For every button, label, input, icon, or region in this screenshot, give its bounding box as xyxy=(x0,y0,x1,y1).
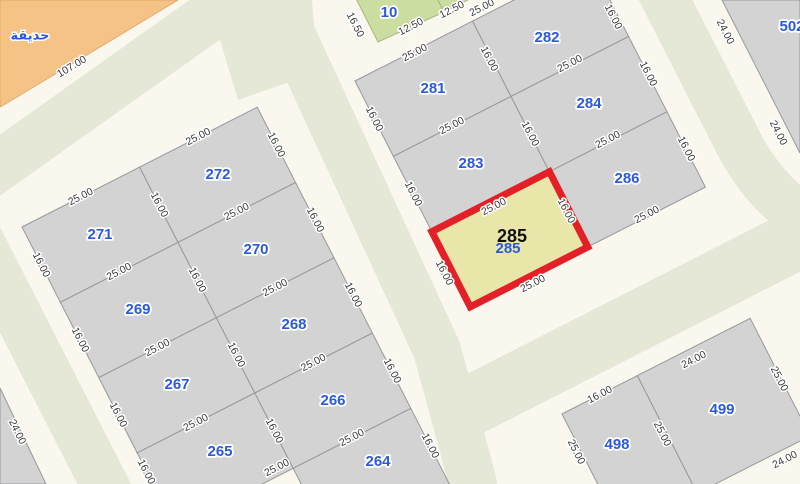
parcel-number-garden: حديقة xyxy=(11,27,50,42)
selected-parcel-number: 285 xyxy=(497,226,527,246)
parcel-number-498: 498 xyxy=(604,436,629,453)
parcel-number-10: 10 xyxy=(381,4,398,21)
parcel-number-281: 281 xyxy=(420,80,445,97)
parcel-number-499: 499 xyxy=(709,401,734,418)
parcel-number-270: 270 xyxy=(243,241,268,258)
parcel-number-502: 502 xyxy=(779,18,800,35)
parcel-number-267: 267 xyxy=(164,376,189,393)
parcel-number-265: 265 xyxy=(207,443,232,460)
parcel-number-266: 266 xyxy=(320,392,345,409)
map-canvas[interactable]: 107.0016.5012.5012.5025.0025.0025.0025.0… xyxy=(0,0,800,484)
parcel-number-264: 264 xyxy=(365,453,391,470)
parcel-number-269: 269 xyxy=(125,301,150,318)
parcel-number-283: 283 xyxy=(458,155,483,172)
parcel-number-282: 282 xyxy=(534,29,559,46)
parcel-number-271: 271 xyxy=(87,226,112,243)
parcel-number-268: 268 xyxy=(281,316,306,333)
parcel-number-286: 286 xyxy=(614,170,639,187)
parcel-number-284: 284 xyxy=(576,95,602,112)
cadastral-map[interactable]: 107.0016.5012.5012.5025.0025.0025.0025.0… xyxy=(0,0,800,484)
parcel-number-272: 272 xyxy=(205,166,230,183)
